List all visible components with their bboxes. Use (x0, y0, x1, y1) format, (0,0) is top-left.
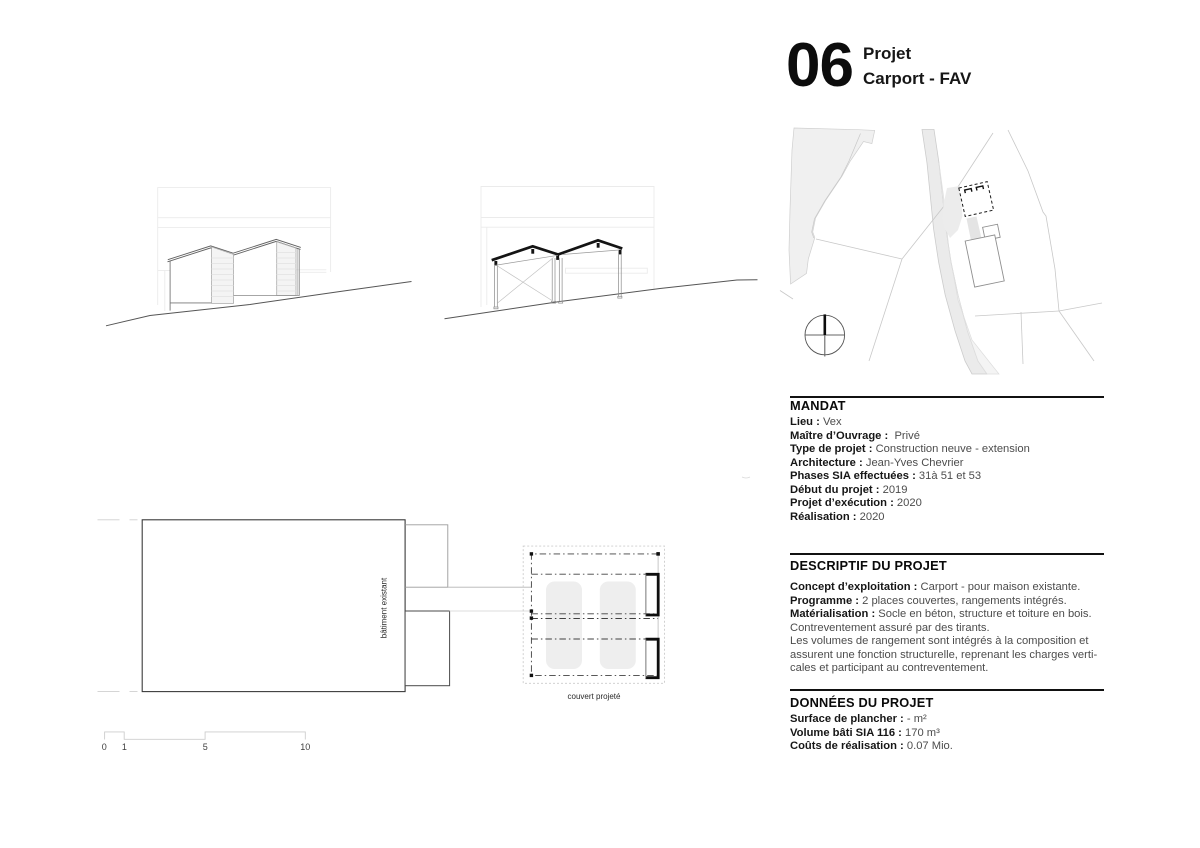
svg-text:bâtiment existant: bâtiment existant (380, 577, 389, 638)
svg-text:0: 0 (102, 742, 107, 752)
svg-text:10: 10 (300, 742, 310, 752)
svg-text:5: 5 (203, 742, 208, 752)
svg-text:couvert projeté: couvert projeté (568, 692, 621, 701)
svg-text:1: 1 (122, 742, 127, 752)
